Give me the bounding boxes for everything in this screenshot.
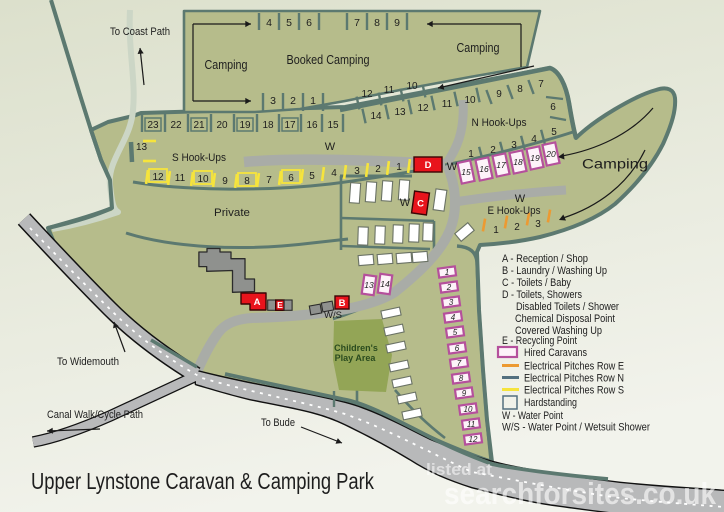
svg-text:Canal Walk/Cycle Path: Canal Walk/Cycle Path [47, 409, 143, 421]
svg-text:4: 4 [451, 313, 456, 322]
svg-text:Chemical Disposal Point: Chemical Disposal Point [515, 313, 615, 325]
svg-text:6: 6 [288, 173, 294, 184]
svg-text:4: 4 [531, 134, 537, 145]
svg-text:W - Water Point: W - Water Point [502, 410, 563, 422]
svg-text:D: D [425, 160, 432, 171]
svg-text:11: 11 [442, 99, 453, 110]
svg-text:8: 8 [244, 176, 250, 187]
svg-text:11: 11 [467, 420, 475, 429]
svg-text:Booked Camping: Booked Camping [287, 53, 370, 67]
svg-text:13: 13 [394, 107, 406, 118]
svg-text:W: W [400, 197, 411, 209]
svg-text:searchforsites.co.uk: searchforsites.co.uk [444, 476, 717, 511]
svg-text:Camping: Camping [582, 157, 648, 172]
svg-text:22: 22 [170, 120, 182, 131]
svg-text:7: 7 [266, 175, 272, 186]
svg-text:3: 3 [354, 166, 360, 177]
svg-text:17: 17 [284, 120, 296, 131]
svg-text:To Coast Path: To Coast Path [110, 26, 170, 38]
svg-text:W/S: W/S [324, 310, 342, 321]
svg-text:Hardstanding: Hardstanding [524, 397, 577, 409]
svg-text:23: 23 [147, 120, 159, 131]
svg-text:S Hook-Ups: S Hook-Ups [172, 152, 226, 164]
svg-text:Camping: Camping [457, 41, 500, 55]
svg-text:12: 12 [152, 172, 164, 183]
svg-text:A - Reception / Shop: A - Reception / Shop [502, 253, 588, 265]
svg-text:4: 4 [266, 17, 272, 29]
svg-text:10: 10 [464, 405, 473, 414]
svg-text:7: 7 [457, 359, 462, 368]
svg-text:1: 1 [310, 95, 316, 107]
svg-text:9: 9 [222, 176, 228, 187]
svg-text:Disabled Toilets / Shower: Disabled Toilets / Shower [516, 301, 619, 313]
svg-text:B - Laundry / Washing Up: B - Laundry / Washing Up [502, 265, 607, 277]
svg-text:E Hook-Ups: E Hook-Ups [488, 205, 541, 217]
svg-text:2: 2 [514, 222, 520, 233]
svg-text:E: E [277, 300, 283, 310]
svg-text:20: 20 [545, 149, 556, 159]
svg-text:W: W [325, 141, 336, 153]
svg-text:1: 1 [445, 268, 449, 277]
svg-text:10: 10 [197, 174, 209, 185]
svg-text:15: 15 [461, 167, 471, 177]
svg-text:D - Toilets, Showers: D - Toilets, Showers [502, 289, 582, 301]
svg-text:2: 2 [446, 283, 452, 292]
svg-text:12: 12 [417, 103, 429, 114]
svg-text:7: 7 [538, 79, 544, 90]
svg-text:20: 20 [216, 120, 228, 131]
svg-text:13: 13 [364, 280, 374, 290]
svg-text:11: 11 [384, 85, 395, 96]
svg-text:Electrical Pitches Row S: Electrical Pitches Row S [524, 385, 624, 397]
svg-text:10: 10 [406, 81, 418, 92]
svg-text:17: 17 [496, 160, 506, 170]
svg-text:To Widemouth: To Widemouth [57, 356, 119, 368]
svg-text:Electrical Pitches Row N: Electrical Pitches Row N [524, 373, 624, 385]
svg-text:1: 1 [493, 225, 499, 236]
svg-text:21: 21 [193, 120, 205, 131]
svg-text:Hired Caravans: Hired Caravans [524, 347, 587, 359]
svg-text:Electrical Pitches Row E: Electrical Pitches Row E [524, 361, 624, 373]
svg-text:6: 6 [550, 102, 556, 113]
svg-text:6: 6 [455, 344, 460, 353]
svg-text:Camping: Camping [205, 58, 248, 72]
svg-text:3: 3 [449, 298, 454, 307]
svg-text:5: 5 [309, 171, 315, 182]
svg-text:Upper Lynstone Caravan & Campi: Upper Lynstone Caravan & Camping Park [31, 468, 374, 494]
svg-text:Private: Private [214, 207, 250, 219]
svg-text:C: C [417, 198, 424, 209]
svg-text:13: 13 [136, 142, 148, 153]
svg-text:N Hook-Ups: N Hook-Ups [472, 117, 527, 129]
svg-text:5: 5 [551, 127, 557, 138]
svg-text:B: B [339, 298, 346, 309]
svg-text:10: 10 [464, 95, 476, 106]
svg-text:2: 2 [375, 164, 381, 175]
svg-text:16: 16 [479, 164, 489, 174]
svg-text:19: 19 [239, 120, 251, 131]
svg-text:A: A [254, 297, 261, 308]
svg-text:18: 18 [513, 157, 523, 167]
svg-text:9: 9 [496, 89, 502, 100]
svg-text:9: 9 [394, 17, 400, 29]
svg-text:15: 15 [327, 120, 339, 131]
svg-text:2: 2 [290, 95, 296, 107]
svg-text:To Bude: To Bude [261, 417, 295, 429]
svg-text:3: 3 [270, 95, 276, 107]
svg-text:1: 1 [468, 149, 474, 160]
svg-text:11: 11 [175, 173, 186, 184]
svg-text:7: 7 [354, 17, 360, 29]
svg-text:3: 3 [535, 219, 541, 230]
svg-text:12: 12 [469, 435, 478, 444]
svg-text:3: 3 [511, 140, 517, 151]
svg-text:8: 8 [459, 374, 464, 383]
svg-text:14: 14 [380, 279, 390, 289]
svg-text:W/S - Water Point / Wetsuit Sh: W/S - Water Point / Wetsuit Shower [502, 422, 650, 434]
svg-text:C - Toilets / Baby: C - Toilets / Baby [502, 277, 571, 289]
svg-text:14: 14 [370, 111, 382, 122]
svg-text:16: 16 [306, 120, 318, 131]
svg-text:5: 5 [453, 328, 458, 337]
svg-text:6: 6 [306, 17, 312, 29]
svg-text:E - Recycling Point: E - Recycling Point [502, 335, 577, 347]
svg-text:5: 5 [286, 17, 292, 29]
svg-text:4: 4 [331, 168, 337, 179]
svg-text:Play Area: Play Area [335, 353, 377, 363]
svg-text:19: 19 [530, 153, 540, 163]
svg-text:18: 18 [262, 120, 274, 131]
svg-text:8: 8 [374, 17, 380, 29]
svg-text:8: 8 [517, 84, 523, 95]
svg-text:Children's: Children's [334, 343, 378, 353]
svg-text:W: W [447, 161, 458, 173]
svg-text:W: W [515, 193, 526, 205]
svg-text:12: 12 [361, 89, 373, 100]
svg-text:1: 1 [396, 162, 402, 173]
svg-text:9: 9 [462, 389, 467, 398]
